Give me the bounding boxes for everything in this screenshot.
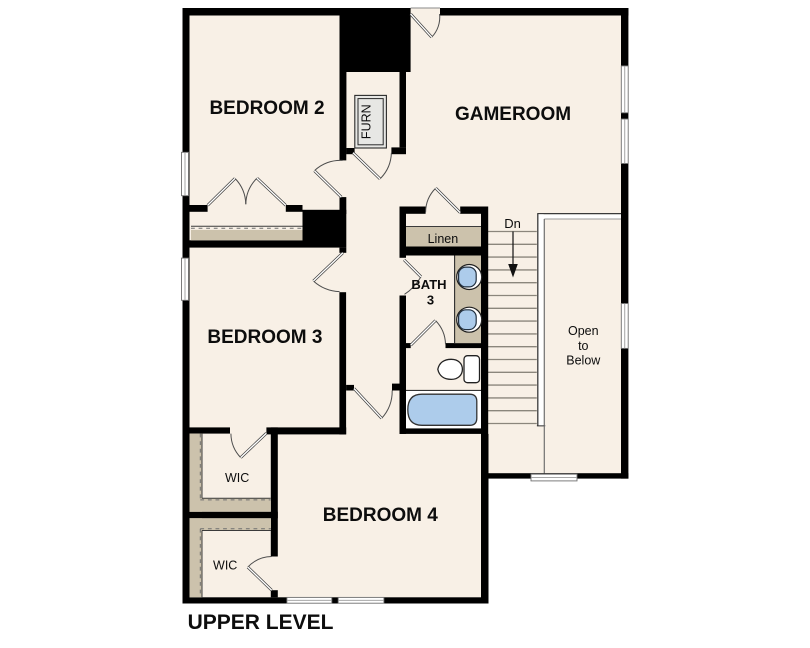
svg-text:Below: Below bbox=[566, 354, 601, 368]
svg-text:Linen: Linen bbox=[428, 232, 459, 246]
svg-text:to: to bbox=[578, 339, 588, 353]
svg-text:Dn: Dn bbox=[504, 216, 521, 231]
svg-text:GAMEROOM: GAMEROOM bbox=[455, 104, 571, 125]
svg-text:3: 3 bbox=[427, 293, 434, 308]
svg-text:FURN: FURN bbox=[360, 104, 374, 139]
svg-text:BATH: BATH bbox=[411, 277, 446, 292]
svg-text:UPPER LEVEL: UPPER LEVEL bbox=[188, 611, 334, 634]
svg-text:WIC: WIC bbox=[225, 471, 249, 485]
svg-text:Open: Open bbox=[568, 324, 599, 338]
svg-text:BEDROOM 3: BEDROOM 3 bbox=[207, 327, 322, 348]
svg-text:BEDROOM 2: BEDROOM 2 bbox=[209, 98, 324, 119]
svg-text:WIC: WIC bbox=[213, 558, 237, 572]
svg-text:BEDROOM 4: BEDROOM 4 bbox=[323, 505, 439, 526]
